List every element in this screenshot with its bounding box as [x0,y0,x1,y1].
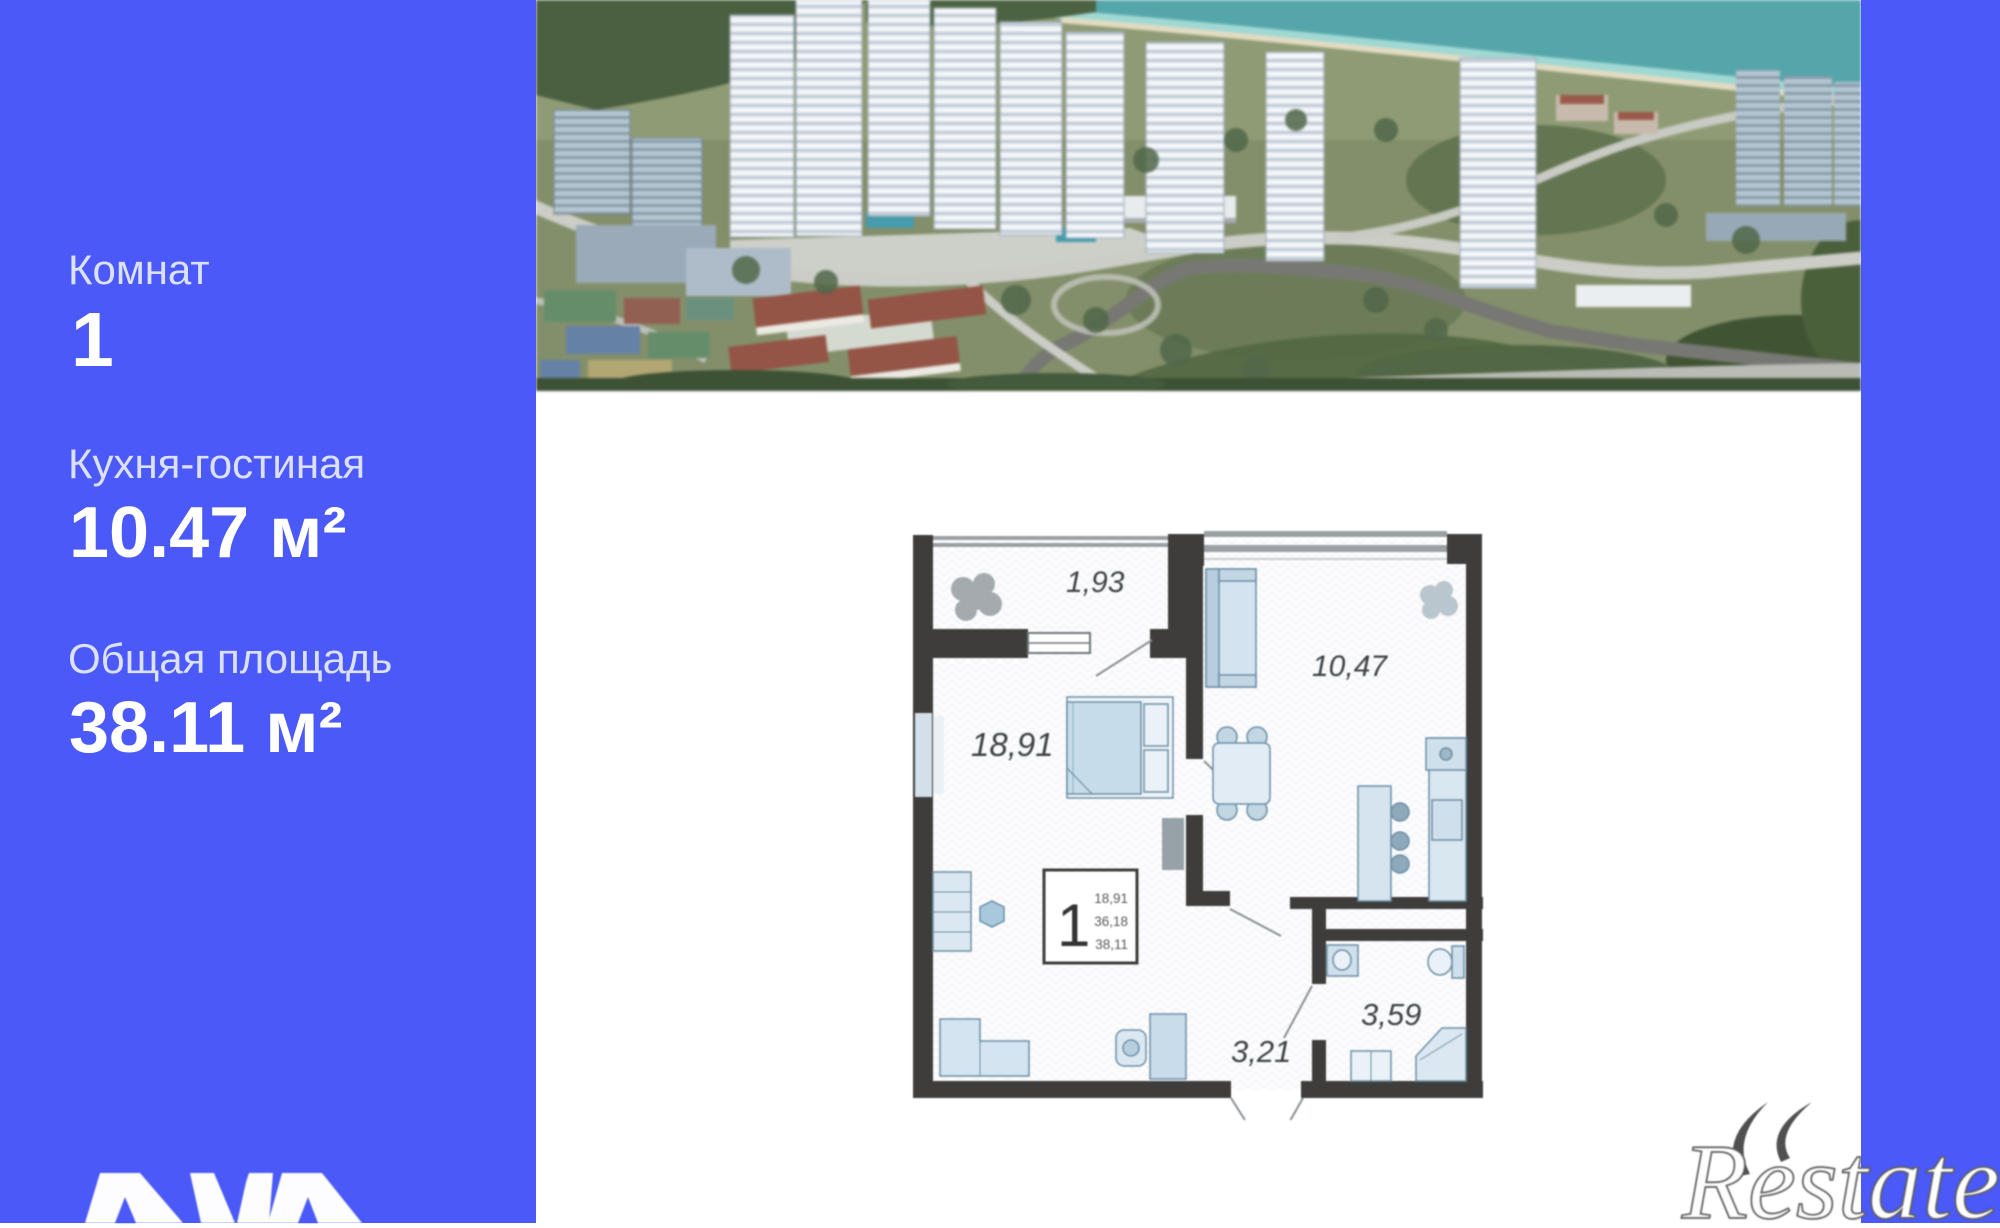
svg-text:36,18: 36,18 [1094,914,1128,929]
svg-text:38,11: 38,11 [1095,937,1128,952]
svg-text:1,93: 1,93 [1066,566,1125,599]
svg-text:Restate: Restate [1681,1123,2000,1223]
svg-text:18,91: 18,91 [1094,891,1128,906]
svg-text:18,91: 18,91 [971,726,1054,763]
svg-text:3,21: 3,21 [1231,1034,1291,1069]
svg-text:10,47: 10,47 [1312,650,1388,683]
svg-text:1: 1 [1057,892,1090,959]
svg-text:3,59: 3,59 [1361,997,1421,1032]
